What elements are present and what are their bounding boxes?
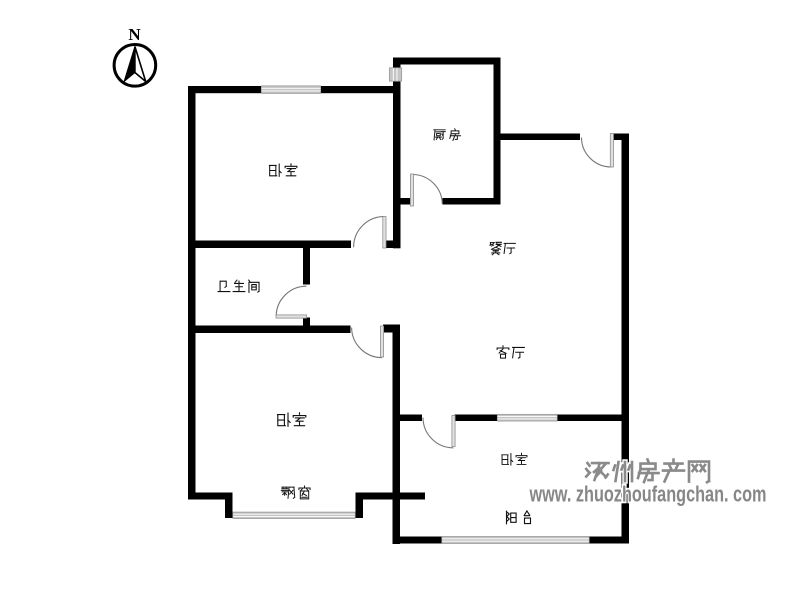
- svg-text:www. zhuozhoufangchan. com: www. zhuozhoufangchan. com: [529, 482, 767, 507]
- svg-text:N: N: [128, 25, 141, 44]
